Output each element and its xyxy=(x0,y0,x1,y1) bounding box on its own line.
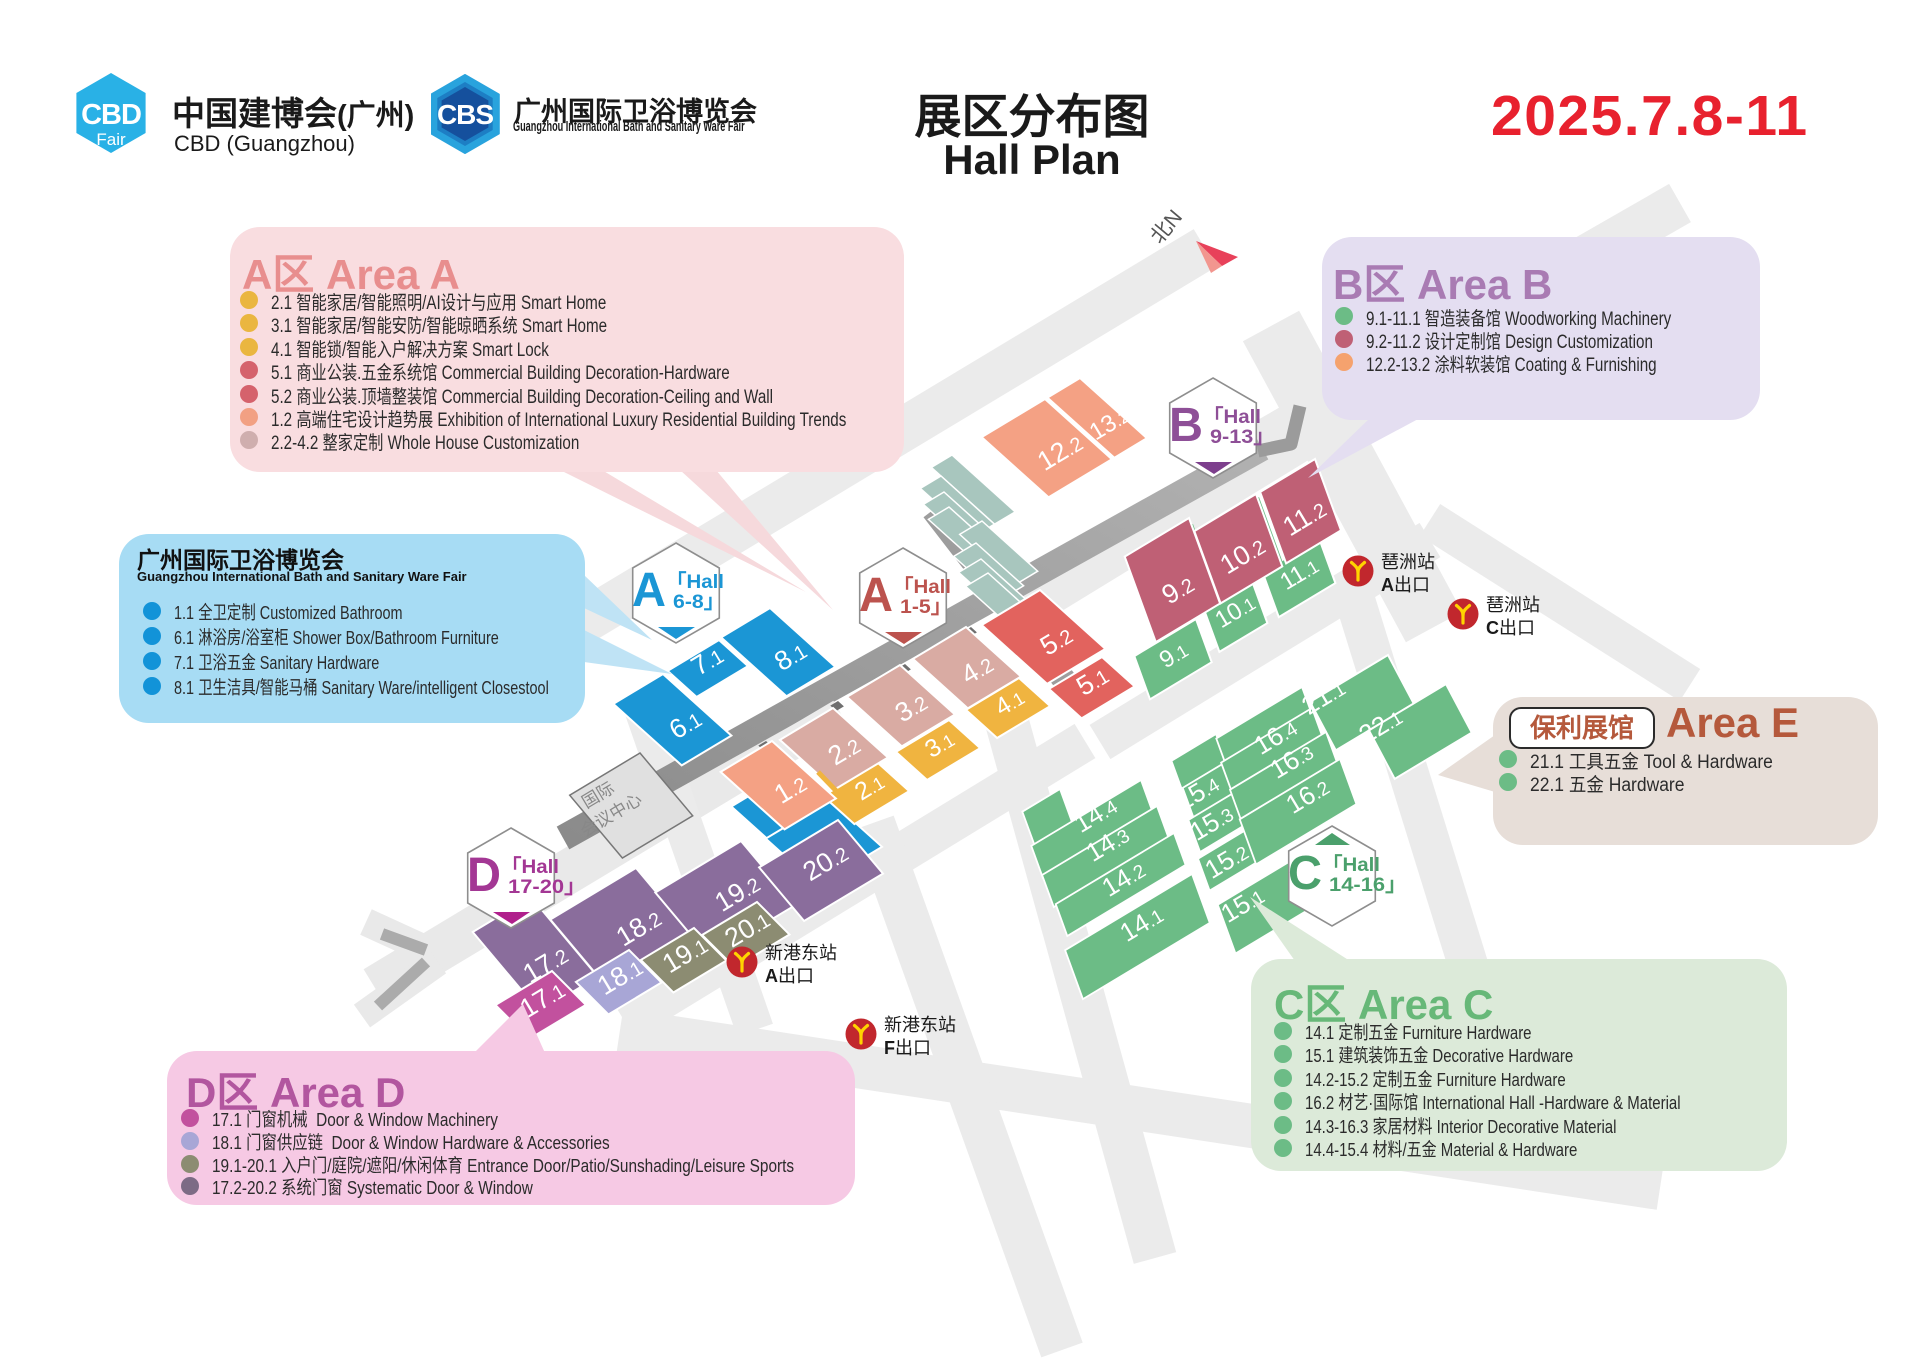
svg-text:C出口: C出口 xyxy=(1486,618,1535,638)
svg-text:A: A xyxy=(859,569,893,622)
svg-text:「Hall: 「Hall xyxy=(893,575,951,598)
svg-text:17-20」: 17-20」 xyxy=(508,876,586,898)
svg-text:C: C xyxy=(1288,847,1322,900)
svg-text:A出口: A出口 xyxy=(765,966,814,986)
svg-text:D: D xyxy=(467,849,501,902)
svg-text:6-8」: 6-8」 xyxy=(673,591,725,613)
svg-text:琶洲站: 琶洲站 xyxy=(1381,552,1435,572)
svg-text:琶洲站: 琶洲站 xyxy=(1486,595,1540,615)
svg-text:「Hall: 「Hall xyxy=(1203,405,1261,428)
svg-text:A出口: A出口 xyxy=(1381,575,1430,595)
svg-text:14-16」: 14-16」 xyxy=(1329,874,1407,896)
svg-text:B: B xyxy=(1169,399,1203,452)
svg-text:A: A xyxy=(632,564,666,617)
svg-text:新港东站: 新港东站 xyxy=(765,943,837,963)
svg-text:F出口: F出口 xyxy=(884,1038,931,1058)
svg-text:CBS: CBS xyxy=(437,99,493,130)
svg-text:CBD: CBD xyxy=(81,99,141,131)
svg-text:1-5」: 1-5」 xyxy=(900,596,952,618)
svg-text:「Hall: 「Hall xyxy=(501,855,559,878)
svg-text:9-13」: 9-13」 xyxy=(1210,426,1275,448)
svg-text:新港东站: 新港东站 xyxy=(884,1015,956,1035)
svg-text:「Hall: 「Hall xyxy=(1322,853,1380,876)
svg-text:Fair: Fair xyxy=(96,130,126,149)
svg-text:「Hall: 「Hall xyxy=(666,570,724,593)
